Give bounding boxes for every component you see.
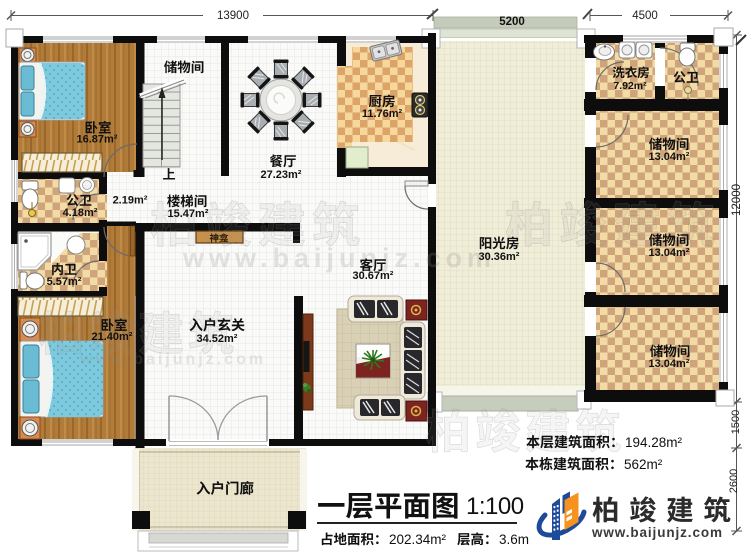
svg-text:3.6m: 3.6m	[499, 532, 529, 547]
svg-text:12000: 12000	[731, 184, 743, 216]
svg-text:5.57m²: 5.57m²	[47, 276, 82, 288]
svg-text:www.baijunjz.com: www.baijunjz.com	[79, 351, 266, 368]
svg-text:13.04m²: 13.04m²	[649, 358, 690, 370]
svg-text:7.92m²: 7.92m²	[613, 80, 647, 92]
svg-text:21.40m²: 21.40m²	[92, 331, 133, 343]
svg-text:1500: 1500	[730, 410, 742, 434]
svg-text:5200: 5200	[499, 16, 525, 28]
svg-text:34.52m²: 34.52m²	[197, 333, 238, 345]
svg-text:16.87m²: 16.87m²	[77, 134, 118, 146]
svg-text:1:100: 1:100	[466, 493, 524, 520]
svg-text:30.67m²: 30.67m²	[353, 270, 394, 282]
svg-text:27.23m²: 27.23m²	[261, 169, 302, 181]
svg-text:562m²: 562m²	[624, 457, 663, 472]
svg-text:4.18m²: 4.18m²	[63, 207, 98, 219]
svg-text:11.76m²: 11.76m²	[362, 108, 403, 120]
svg-text:2600: 2600	[728, 469, 740, 493]
svg-text:202.34m²: 202.34m²	[389, 532, 447, 547]
svg-text:13900: 13900	[217, 10, 249, 22]
svg-text:www.baijunjz.com: www.baijunjz.com	[591, 525, 723, 540]
svg-text:13.04m²: 13.04m²	[649, 151, 690, 163]
svg-text:13.04m²: 13.04m²	[649, 247, 690, 259]
svg-text:2.19m²: 2.19m²	[113, 195, 148, 207]
svg-text:www.baijunjz.com: www.baijunjz.com	[182, 243, 496, 273]
svg-text:4500: 4500	[632, 10, 658, 22]
svg-text:30.36m²: 30.36m²	[479, 251, 520, 263]
svg-text:15.47m²: 15.47m²	[168, 208, 209, 220]
svg-text:194.28m²: 194.28m²	[625, 435, 683, 450]
